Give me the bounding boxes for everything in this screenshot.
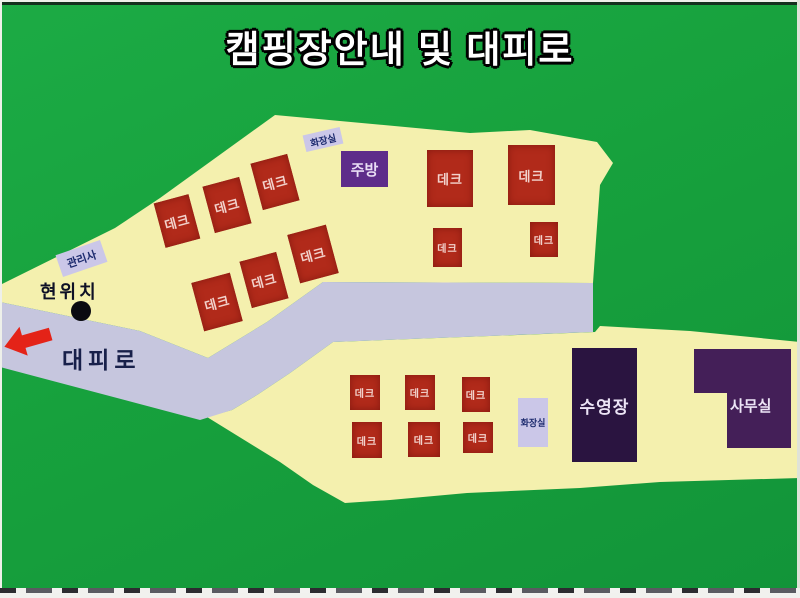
deck-label: 데크 — [519, 166, 545, 185]
deck-marker: 데크 — [250, 154, 299, 210]
deck-marker: 데크 — [191, 273, 243, 332]
toilet-lower-label: 화장실 — [521, 416, 546, 429]
deck-label: 데크 — [534, 232, 554, 247]
swimming-pool-building: 수영장 — [572, 348, 637, 462]
deck-marker: 데크 — [287, 225, 339, 284]
deck-label: 데크 — [355, 385, 375, 400]
deck-marker: 데크 — [433, 228, 462, 267]
deck-label: 데크 — [466, 387, 486, 402]
kitchen-building: 주방 — [341, 151, 388, 187]
deck-marker: 데크 — [462, 377, 490, 412]
office-label: 사무실 — [730, 395, 771, 416]
deck-label: 데크 — [260, 169, 290, 194]
deck-marker: 데크 — [202, 177, 251, 233]
deck-marker: 데크 — [239, 252, 288, 308]
evacuation-route-label: 대피로 — [62, 341, 140, 375]
deck-marker: 데크 — [508, 145, 555, 205]
deck-marker: 데크 — [463, 422, 493, 453]
deck-label: 데크 — [249, 267, 279, 292]
deck-label: 데크 — [298, 241, 328, 266]
deck-marker: 데크 — [350, 375, 380, 410]
deck-layer: 데크데크데크데크데크데크데크데크데크데크데크데크데크데크데크데크 — [0, 0, 800, 598]
deck-marker: 데크 — [154, 194, 201, 248]
frame-line-top — [0, 2, 800, 5]
current-location-label: 현위치 — [40, 278, 99, 304]
deck-marker: 데크 — [408, 422, 440, 457]
swimming-pool-label: 수영장 — [580, 393, 630, 418]
deck-label: 데크 — [202, 289, 232, 314]
frame-edge-left — [0, 0, 2, 598]
deck-marker: 데크 — [352, 422, 382, 458]
deck-label: 데크 — [437, 240, 457, 255]
sign-title: 캠핑장안내 및 대피로 — [0, 19, 800, 73]
frame-edge-bottom — [0, 588, 800, 598]
deck-marker: 데크 — [405, 375, 435, 410]
deck-marker: 데크 — [530, 222, 558, 257]
deck-label: 데크 — [357, 433, 377, 448]
deck-label: 데크 — [468, 430, 488, 445]
evacuation-arrow-icon — [2, 321, 56, 363]
deck-label: 데크 — [212, 192, 242, 217]
deck-label: 데크 — [414, 432, 434, 447]
current-location-dot — [71, 301, 91, 321]
deck-label: 데크 — [437, 169, 463, 188]
toilet-lower-marker: 화장실 — [518, 398, 548, 447]
kitchen-label: 주방 — [351, 159, 379, 180]
campground-map-sign: 데크데크데크데크데크데크데크데크데크데크데크데크데크데크데크데크 주방 수영장 … — [0, 0, 800, 598]
deck-label: 데크 — [410, 385, 430, 400]
frame-edge-bottom-dashes — [0, 588, 800, 593]
deck-marker: 데크 — [427, 150, 473, 207]
deck-label: 데크 — [162, 208, 192, 233]
